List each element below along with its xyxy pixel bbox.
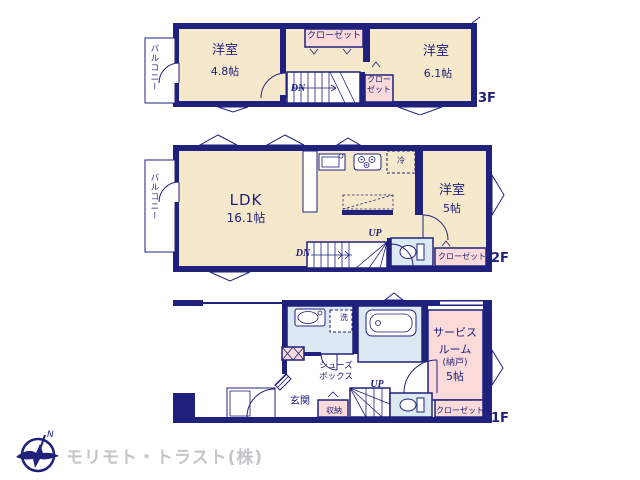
room-label: 洋室 [190, 44, 260, 58]
sink-icon [319, 154, 345, 170]
toilet-icon [400, 244, 424, 260]
window-marker [398, 107, 442, 115]
stairs-up-label: UP [362, 380, 392, 391]
closet-label: クローゼット [299, 32, 369, 41]
kitchen-counter [303, 151, 317, 212]
laundry-label: 洗 [334, 314, 354, 322]
stairs-up-label: UP [360, 229, 390, 240]
floor-label-3f: 3F [478, 92, 496, 106]
window-marker [337, 138, 360, 145]
stairs-dn-label: DN [288, 249, 318, 260]
closet-label: ゼット [359, 86, 399, 94]
stairs-dn-label: DN [283, 84, 313, 95]
room-label: 洋室 [401, 45, 471, 59]
service-room-size: 5帖 [420, 371, 490, 383]
window-marker [492, 350, 503, 385]
window-marker [218, 107, 248, 112]
staircase-2f [307, 242, 387, 268]
room-size: 4.8帖 [190, 66, 260, 78]
room-size: 6.1帖 [403, 68, 473, 80]
window-marker [492, 175, 504, 215]
fence-line [203, 302, 282, 304]
wall-3f [280, 95, 286, 101]
wall-1f [173, 393, 195, 423]
balcony-label: バルコニー [149, 173, 158, 221]
service-room-label: サービス [420, 327, 490, 339]
storage-label: 収納 [314, 407, 354, 415]
shoe-box-icon [282, 347, 304, 360]
service-room-label: ルーム [420, 344, 490, 356]
window-marker [472, 17, 480, 23]
staircase-1f [350, 388, 390, 417]
balcony-label: バルコニー [149, 44, 158, 92]
room-size: 5帖 [417, 203, 487, 215]
wall-1f [282, 360, 287, 374]
wall-1f [173, 300, 203, 306]
room-label: 洋室 [417, 184, 487, 198]
compass-icon: N [12, 426, 64, 478]
entrance-label: 玄関 [275, 397, 325, 408]
fridge-label: 冷 [386, 157, 416, 165]
ldk-size: 16.1帖 [211, 212, 281, 225]
wall-3f [280, 29, 286, 73]
closet-label: クロー [359, 76, 399, 84]
wall-1f [188, 417, 492, 423]
toilet-icon [400, 398, 424, 412]
window-marker [200, 135, 237, 145]
compass-n-label: N [47, 430, 54, 440]
shoe-box-label: シューズ [306, 362, 366, 371]
window-marker [440, 302, 485, 305]
wall-1f [282, 306, 287, 347]
closet-label: クローゼット [427, 253, 497, 261]
toilet-room-2f [391, 238, 433, 266]
stove-icon [354, 154, 381, 170]
window-marker [210, 272, 250, 281]
shoe-box-label: ボックス [306, 373, 366, 382]
ldk-label: LDK [211, 193, 281, 209]
company-logo-text: モリモト・トラスト(株) [66, 443, 263, 468]
floor-label-2f: 2F [491, 252, 509, 266]
window-marker [385, 293, 403, 300]
porch [227, 388, 275, 419]
washbasin-icon [295, 309, 325, 326]
floorplan-canvas: 洋室 4.8帖 洋室 6.1帖 クローゼット クロー ゼット DN バルコニー … [0, 0, 640, 480]
closet-label: クローゼット [425, 407, 495, 415]
window-marker [267, 135, 304, 145]
service-room-label: (納戸) [420, 359, 490, 368]
bathtub-icon [366, 310, 416, 336]
floor-label-1f: 1F [491, 412, 509, 426]
floor-3f-plan [140, 15, 510, 115]
